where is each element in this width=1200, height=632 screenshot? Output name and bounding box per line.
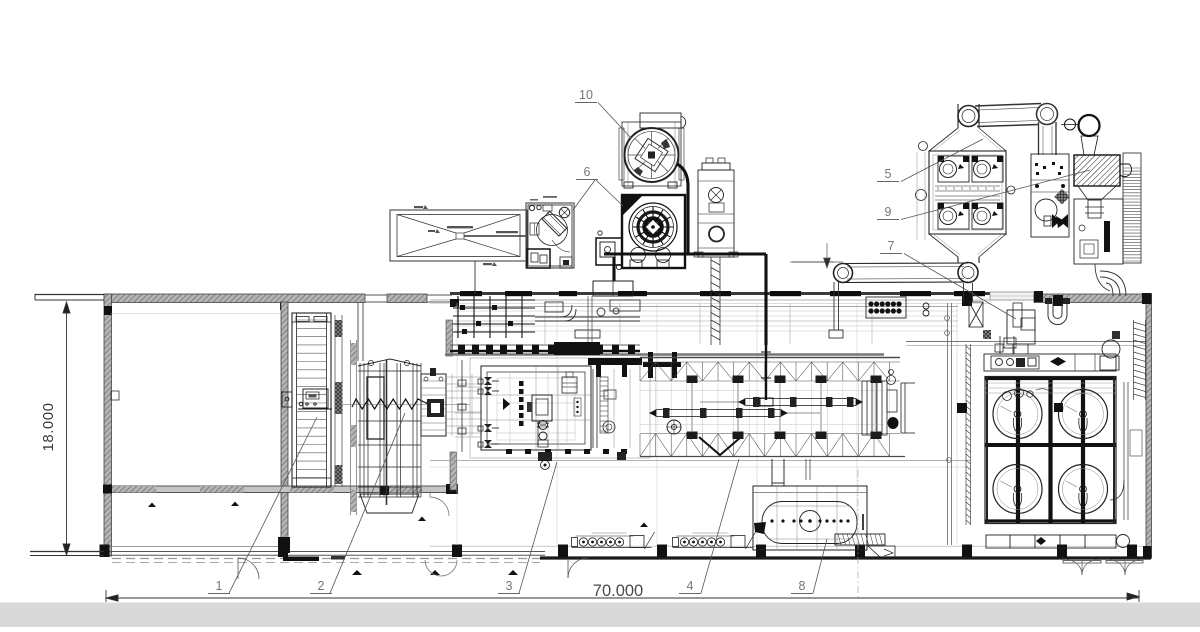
svg-text:1: 1 bbox=[216, 579, 223, 593]
svg-text:7: 7 bbox=[888, 239, 895, 253]
svg-text:6: 6 bbox=[584, 165, 591, 179]
svg-text:3: 3 bbox=[506, 579, 513, 593]
svg-text:5: 5 bbox=[885, 167, 892, 181]
svg-text:10: 10 bbox=[579, 88, 593, 102]
svg-text:4: 4 bbox=[687, 579, 694, 593]
svg-text:70.000: 70.000 bbox=[593, 582, 643, 600]
svg-text:9: 9 bbox=[885, 205, 892, 219]
svg-text:2: 2 bbox=[318, 579, 325, 593]
svg-text:8: 8 bbox=[799, 579, 806, 593]
svg-text:18.000: 18.000 bbox=[40, 403, 57, 452]
